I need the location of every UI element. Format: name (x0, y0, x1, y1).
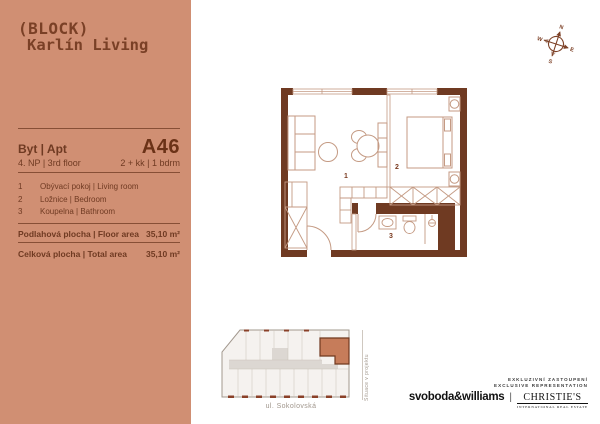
floor-area-row: Podlahová plocha | Floor area 35,10 m² (18, 229, 180, 239)
bathroom-door (358, 214, 376, 232)
floor-label: 4. NP | 3rd floor (18, 158, 81, 168)
info-panel: (BLOCK) Karlín Living Byt | Apt A46 4. N… (0, 0, 191, 424)
compass-s-label: S (547, 59, 553, 66)
entrance-door (307, 226, 331, 250)
divider-line (18, 223, 180, 224)
legend-name: Koupelna | Bathroom (40, 207, 115, 216)
compass-n-label: N (558, 24, 564, 31)
legend-row-living: 1 Obývací pokoj | Living room (18, 182, 180, 191)
unit-meta-row: 4. NP | 3rd floor 2 + kk | 1 bdrm (18, 158, 180, 168)
legend-name: Obývací pokoj | Living room (40, 182, 139, 191)
site-plan-side-label: Situace v projektu (364, 331, 370, 401)
legend-row-bedroom: 2 Ložnice | Bedroom (18, 195, 180, 204)
layout-label: 2 + kk | 1 bdrm (120, 158, 180, 168)
representation-label-en: EXCLUSIVE REPRESENTATION (409, 383, 588, 389)
block-karlin-logo: (BLOCK) Karlín Living (18, 20, 148, 54)
legend-num: 1 (18, 182, 40, 191)
christies-name: CHRISTIE'S (523, 393, 581, 403)
outer-walls (281, 88, 467, 257)
floor-area-value: 35,10 m² (146, 229, 180, 239)
total-area-label: Celková plocha | Total area (18, 249, 127, 259)
dining-set (352, 131, 380, 162)
window-bedroom (387, 89, 437, 94)
nightstand-top (449, 97, 460, 111)
floor-plan: 1 2 (279, 86, 469, 260)
room-number-bathroom: 3 (389, 233, 393, 240)
footer-branding: EXKLUZIVNÍ ZASTOUPENÍ EXCLUSIVE REPRESEN… (409, 377, 588, 409)
room-legend: 1 Obývací pokoj | Living room 2 Ložnice … (18, 182, 180, 220)
legend-row-bathroom: 3 Koupelna | Bathroom (18, 207, 180, 216)
compass-w-label: W (536, 36, 544, 44)
divider-line (18, 172, 180, 173)
compass-e-label: E (569, 47, 575, 54)
brand-row: svoboda&williams | CHRISTIE'S INTERNATIO… (409, 391, 588, 409)
legend-num: 3 (18, 207, 40, 216)
shower (425, 214, 436, 244)
legend-name: Ložnice | Bedroom (40, 195, 107, 204)
bed (407, 117, 452, 168)
total-area-value: 35,10 m² (146, 249, 180, 259)
window-living (293, 89, 352, 94)
rug (319, 143, 338, 162)
divider-line (18, 128, 180, 129)
unit-header-row: Byt | Apt A46 (18, 136, 180, 159)
room-number-bedroom: 2 (395, 164, 399, 171)
street-label: ul. Sokolovská (216, 403, 366, 410)
site-plan-separator (362, 330, 363, 400)
wardrobe-strip (390, 187, 460, 205)
svoboda-williams-logo: svoboda&williams (409, 391, 505, 403)
site-plan (216, 326, 366, 406)
divider-line (18, 242, 180, 243)
nightstand-bottom (449, 172, 460, 186)
compass-rose-icon: N E S W (528, 16, 584, 72)
total-area-row: Celková plocha | Total area 35,10 m² (18, 249, 180, 259)
christies-subtitle: INTERNATIONAL REAL ESTATE (517, 403, 588, 409)
room-number-living: 1 (344, 173, 348, 180)
sofa (288, 116, 315, 170)
bathroom-sink (379, 216, 396, 229)
toilet (403, 216, 416, 234)
logo-line2: Karlín Living (27, 37, 148, 54)
unit-code: A46 (142, 136, 180, 159)
entry-wardrobe (285, 182, 307, 248)
unit-label: Byt | Apt (18, 142, 67, 156)
logo-line1: (BLOCK) (18, 20, 148, 37)
brand-separator: | (509, 392, 512, 403)
christies-logo: CHRISTIE'S INTERNATIONAL REAL ESTATE (517, 393, 588, 409)
brochure-page: (BLOCK) Karlín Living Byt | Apt A46 4. N… (0, 0, 600, 424)
floor-area-label: Podlahová plocha | Floor area (18, 229, 139, 239)
legend-num: 2 (18, 195, 40, 204)
